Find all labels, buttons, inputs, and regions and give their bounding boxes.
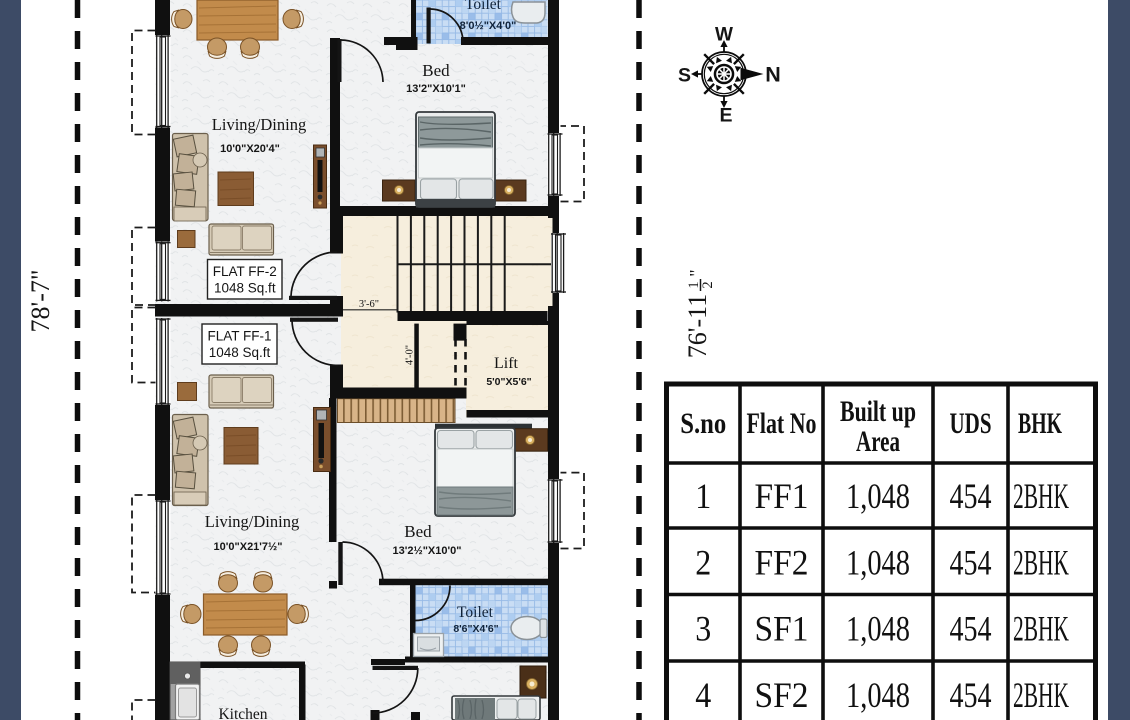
svg-text:FLAT FF-2: FLAT FF-2 — [213, 264, 277, 279]
svg-text:10'0"X21'7½": 10'0"X21'7½" — [214, 541, 283, 553]
svg-text:4'-0": 4'-0" — [405, 345, 416, 365]
svg-text:N: N — [765, 63, 781, 87]
svg-text:Toilet: Toilet — [457, 604, 494, 621]
svg-text:UDS: UDS — [950, 407, 992, 440]
svg-text:78'-7": 78'-7" — [26, 270, 55, 333]
svg-text:2BHK: 2BHK — [1013, 675, 1069, 715]
svg-text:8'0½"X4'0": 8'0½"X4'0" — [460, 20, 517, 32]
svg-text:13'2"X10'1": 13'2"X10'1" — [406, 83, 466, 95]
svg-text:1,048: 1,048 — [846, 476, 910, 516]
svg-text:454: 454 — [950, 476, 992, 516]
svg-text:76'-11: 76'-11 — [683, 294, 712, 358]
svg-text:FF1: FF1 — [755, 476, 809, 516]
svg-text:1,048: 1,048 — [846, 542, 910, 582]
svg-text:SF2: SF2 — [755, 675, 809, 715]
svg-text:E: E — [719, 105, 732, 127]
svg-text:Bed: Bed — [422, 61, 450, 80]
svg-text:1048 Sq.ft: 1048 Sq.ft — [209, 345, 271, 360]
svg-text:8'6"X4'6": 8'6"X4'6" — [453, 623, 498, 635]
svg-text:2BHK: 2BHK — [1013, 542, 1069, 582]
svg-text:2: 2 — [695, 542, 711, 582]
svg-text:BHK: BHK — [1018, 407, 1062, 440]
svg-text:Living/Dining: Living/Dining — [205, 512, 299, 531]
svg-text:454: 454 — [950, 609, 992, 649]
svg-text:Bed: Bed — [404, 522, 432, 541]
svg-text:SF1: SF1 — [755, 609, 809, 649]
svg-text:454: 454 — [950, 542, 992, 582]
svg-text:Lift: Lift — [494, 355, 519, 372]
svg-text:Toilet: Toilet — [465, 0, 502, 13]
svg-text:S.no: S.no — [680, 407, 726, 440]
svg-text:Kitchen: Kitchen — [218, 706, 267, 720]
svg-text:Built up: Built up — [840, 395, 916, 428]
svg-text:": " — [686, 269, 706, 276]
svg-text:W: W — [715, 25, 733, 46]
svg-text:1,048: 1,048 — [846, 609, 910, 649]
svg-text:FF2: FF2 — [755, 542, 809, 582]
svg-text:3: 3 — [695, 609, 711, 649]
svg-text:2BHK: 2BHK — [1013, 609, 1069, 649]
svg-text:Living/Dining: Living/Dining — [212, 115, 306, 134]
svg-text:2: 2 — [700, 281, 716, 288]
svg-text:Flat No: Flat No — [747, 407, 817, 440]
svg-text:4: 4 — [695, 675, 711, 715]
svg-text:13'2½"X10'0": 13'2½"X10'0" — [393, 545, 462, 557]
svg-text:454: 454 — [950, 675, 992, 715]
svg-text:10'0"X20'4": 10'0"X20'4" — [220, 143, 280, 155]
svg-text:1048 Sq.ft: 1048 Sq.ft — [214, 281, 276, 296]
svg-text:1: 1 — [695, 476, 711, 516]
svg-text:FLAT FF-1: FLAT FF-1 — [207, 329, 271, 344]
svg-text:5'0"X5'6": 5'0"X5'6" — [486, 376, 531, 388]
svg-text:3'-6": 3'-6" — [359, 299, 379, 310]
svg-text:2BHK: 2BHK — [1013, 476, 1069, 516]
svg-text:S: S — [678, 65, 691, 87]
svg-text:Area: Area — [856, 425, 900, 458]
svg-text:1,048: 1,048 — [846, 675, 910, 715]
